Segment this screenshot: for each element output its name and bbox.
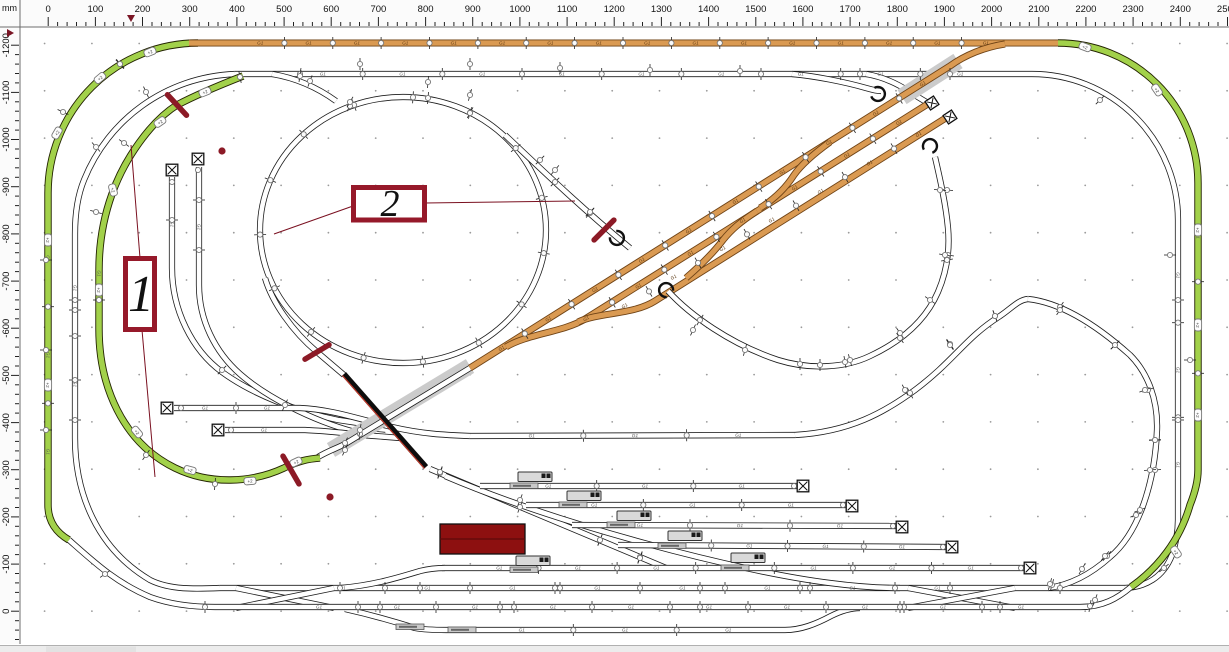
svg-text:+2: +2 xyxy=(1195,227,1200,233)
svg-text:G1: G1 xyxy=(394,605,401,610)
svg-text:G1: G1 xyxy=(718,72,725,77)
svg-text:G1: G1 xyxy=(320,72,327,77)
svg-text:G1: G1 xyxy=(838,41,845,46)
svg-text:G1: G1 xyxy=(45,449,50,456)
svg-text:G1: G1 xyxy=(402,41,409,46)
svg-text:-700: -700 xyxy=(1,272,12,291)
svg-text:-1200: -1200 xyxy=(1,33,12,57)
svg-text:-400: -400 xyxy=(1,413,12,432)
svg-text:2200: 2200 xyxy=(1075,4,1096,15)
svg-text:+2: +2 xyxy=(247,479,253,484)
svg-text:+2: +2 xyxy=(45,382,50,388)
svg-text:300: 300 xyxy=(182,4,198,15)
svg-text:G1: G1 xyxy=(72,285,77,292)
svg-text:2100: 2100 xyxy=(1028,4,1049,15)
svg-text:1400: 1400 xyxy=(698,4,719,15)
svg-text:G1: G1 xyxy=(545,484,552,489)
svg-text:G1: G1 xyxy=(737,523,744,528)
svg-text:G1: G1 xyxy=(693,41,700,46)
svg-text:G1: G1 xyxy=(196,224,201,231)
svg-text:-200: -200 xyxy=(1,507,12,526)
svg-text:G1: G1 xyxy=(424,586,431,591)
svg-text:1700: 1700 xyxy=(840,4,861,15)
svg-text:G1: G1 xyxy=(550,605,557,610)
svg-text:G1: G1 xyxy=(306,41,313,46)
svg-text:-300: -300 xyxy=(1,460,12,479)
svg-text:G1: G1 xyxy=(679,586,686,591)
svg-text:G1: G1 xyxy=(934,586,941,591)
svg-text:G1: G1 xyxy=(1175,367,1180,374)
svg-text:G1: G1 xyxy=(642,484,649,489)
svg-text:G1: G1 xyxy=(264,406,271,411)
svg-text:G1: G1 xyxy=(547,41,554,46)
svg-text:G1: G1 xyxy=(788,503,795,508)
svg-text:-800: -800 xyxy=(1,224,12,243)
svg-text:1500: 1500 xyxy=(745,4,766,15)
svg-text:1200: 1200 xyxy=(604,4,625,15)
svg-text:-1100: -1100 xyxy=(1,81,12,105)
svg-text:1000: 1000 xyxy=(509,4,530,15)
svg-text:G1: G1 xyxy=(594,586,601,591)
svg-text:2400: 2400 xyxy=(1170,4,1191,15)
svg-text:0: 0 xyxy=(46,4,51,15)
svg-text:2000: 2000 xyxy=(981,4,1002,15)
svg-text:G1: G1 xyxy=(575,566,582,571)
svg-text:400: 400 xyxy=(229,4,245,15)
svg-text:G1: G1 xyxy=(1175,462,1180,469)
svg-text:G1: G1 xyxy=(784,605,791,610)
svg-text:G1: G1 xyxy=(637,523,644,528)
svg-text:G1: G1 xyxy=(886,41,893,46)
svg-text:+2: +2 xyxy=(1195,322,1200,328)
svg-text:G1: G1 xyxy=(746,543,753,548)
svg-text:1900: 1900 xyxy=(934,4,955,15)
svg-text:G1: G1 xyxy=(479,72,486,77)
svg-text:G1: G1 xyxy=(940,605,947,610)
svg-text:G1: G1 xyxy=(823,544,830,549)
svg-text:1300: 1300 xyxy=(651,4,672,15)
svg-text:G1: G1 xyxy=(877,72,884,77)
svg-text:1100: 1100 xyxy=(557,4,577,15)
svg-text:G1: G1 xyxy=(899,544,906,549)
svg-text:G1: G1 xyxy=(735,433,742,438)
svg-text:G1: G1 xyxy=(741,41,748,46)
svg-text:1600: 1600 xyxy=(792,4,813,15)
svg-text:G1: G1 xyxy=(739,484,746,489)
svg-text:100: 100 xyxy=(87,4,103,15)
svg-text:G1: G1 xyxy=(789,41,796,46)
svg-text:+2: +2 xyxy=(96,287,101,293)
svg-text:G1: G1 xyxy=(261,428,268,433)
svg-text:G1: G1 xyxy=(644,41,651,46)
svg-text:+2: +2 xyxy=(45,237,50,243)
svg-text:G1: G1 xyxy=(983,41,990,46)
svg-text:G1: G1 xyxy=(451,41,458,46)
svg-text:G1: G1 xyxy=(798,72,805,77)
svg-text:G1: G1 xyxy=(725,628,732,633)
svg-text:2500: 2500 xyxy=(1217,4,1229,15)
svg-text:G1: G1 xyxy=(811,566,818,571)
svg-text:G1: G1 xyxy=(472,605,479,610)
svg-text:-100: -100 xyxy=(1,555,12,574)
svg-text:G1: G1 xyxy=(968,566,975,571)
svg-text:2300: 2300 xyxy=(1123,4,1144,15)
svg-text:G1: G1 xyxy=(96,270,101,277)
svg-text:G1: G1 xyxy=(957,72,964,77)
svg-text:500: 500 xyxy=(276,4,292,15)
svg-text:G1: G1 xyxy=(399,72,406,77)
svg-text:G1: G1 xyxy=(706,605,713,610)
svg-text:G1: G1 xyxy=(529,433,536,438)
svg-text:G1: G1 xyxy=(889,566,896,571)
svg-text:G1: G1 xyxy=(628,605,635,610)
svg-text:G1: G1 xyxy=(202,406,209,411)
svg-text:G1: G1 xyxy=(849,586,856,591)
svg-text:G1: G1 xyxy=(622,628,629,633)
svg-text:600: 600 xyxy=(323,4,339,15)
svg-text:G1: G1 xyxy=(499,41,506,46)
svg-text:0: 0 xyxy=(1,609,12,614)
svg-text:-1000: -1000 xyxy=(1,127,12,151)
svg-text:G1: G1 xyxy=(632,433,639,438)
svg-text:G1: G1 xyxy=(316,605,323,610)
svg-text:G1: G1 xyxy=(596,41,603,46)
svg-text:G1: G1 xyxy=(764,586,771,591)
svg-text:G1: G1 xyxy=(638,72,645,77)
svg-text:+2: +2 xyxy=(1195,412,1200,418)
svg-text:-900: -900 xyxy=(1,177,12,196)
svg-text:G1: G1 xyxy=(837,523,844,528)
svg-text:1: 1 xyxy=(128,266,154,323)
svg-text:G1: G1 xyxy=(591,503,598,508)
svg-text:200: 200 xyxy=(135,4,151,15)
svg-text:G1: G1 xyxy=(509,586,516,591)
svg-text:700: 700 xyxy=(370,4,386,15)
svg-text:-500: -500 xyxy=(1,366,12,385)
svg-text:G1: G1 xyxy=(689,503,696,508)
svg-text:G1: G1 xyxy=(354,41,361,46)
svg-text:900: 900 xyxy=(465,4,481,15)
svg-text:G1: G1 xyxy=(934,41,941,46)
svg-text:G1: G1 xyxy=(1175,272,1180,279)
svg-text:2: 2 xyxy=(381,183,400,225)
svg-text:G1: G1 xyxy=(496,566,503,571)
svg-text:G1: G1 xyxy=(653,566,660,571)
svg-text:G1: G1 xyxy=(257,41,264,46)
svg-text:mm: mm xyxy=(2,3,17,13)
svg-text:G1: G1 xyxy=(862,605,869,610)
svg-text:G1: G1 xyxy=(1018,605,1025,610)
svg-text:-600: -600 xyxy=(1,319,12,338)
svg-text:1800: 1800 xyxy=(887,4,908,15)
svg-text:800: 800 xyxy=(418,4,434,15)
svg-text:G1: G1 xyxy=(519,628,526,633)
